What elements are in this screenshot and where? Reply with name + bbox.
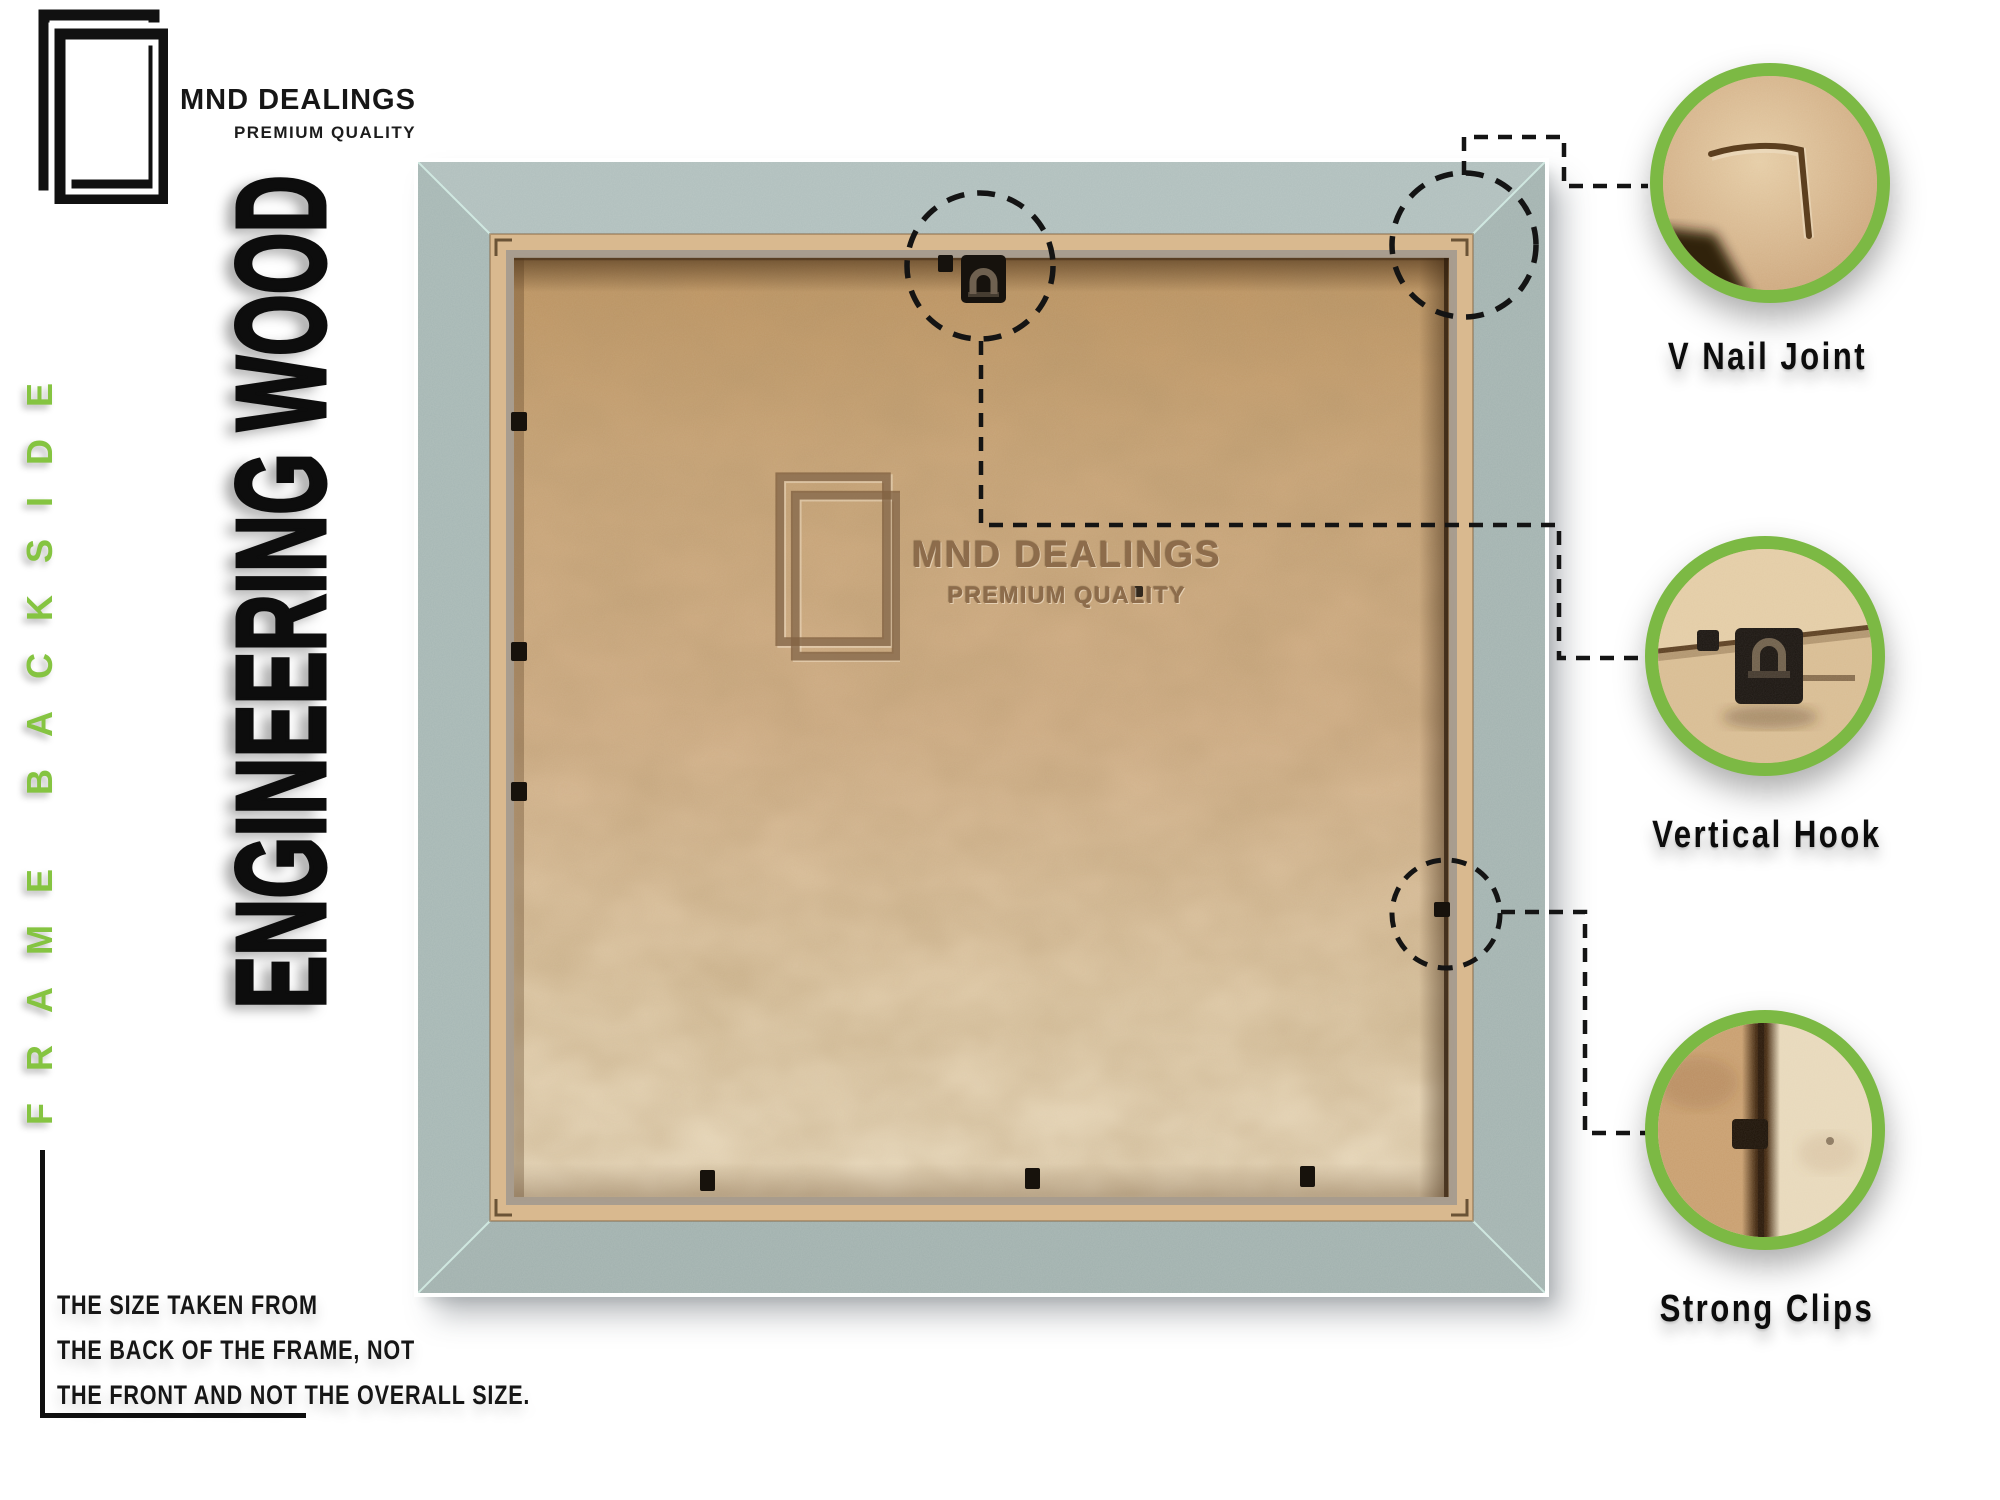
callout-label-strong-clips: Strong Clips — [1617, 1288, 1917, 1331]
brand-logo-icon — [36, 8, 168, 204]
watermark-tagline: PREMIUM QUALITY — [912, 582, 1222, 609]
size-note: THE SIZE TAKEN FROM THE BACK OF THE FRAM… — [57, 1283, 617, 1418]
side-label: FRAME BACKSIDE — [19, 351, 61, 1125]
frame-backside-photo: MND DEALINGS PREMIUM QUALITY — [418, 162, 1545, 1293]
watermark-logo-icon — [772, 468, 900, 662]
watermark-text-block: MND DEALINGS PREMIUM QUALITY — [912, 534, 1222, 609]
strong-clips-inset-photo — [1645, 1010, 1885, 1250]
size-note-line: THE BACK OF THE FRAME, NOT — [57, 1328, 617, 1373]
watermark-name: MND DEALINGS — [912, 534, 1222, 576]
size-note-line: THE FRONT AND NOT THE OVERALL SIZE. — [57, 1373, 617, 1418]
brand-name: MND DEALINGS — [180, 84, 470, 117]
note-bracket-vertical — [40, 1150, 45, 1418]
brand-text-block: MND DEALINGS PREMIUM QUALITY — [180, 84, 470, 143]
callout-label-vertical-hook: Vertical Hook — [1617, 814, 1917, 857]
v-nail-joint-inset-photo — [1650, 63, 1890, 303]
callout-label-v-nail-joint: V Nail Joint — [1617, 336, 1917, 379]
brand-tagline: PREMIUM QUALITY — [180, 123, 470, 143]
vertical-hook-inset-photo — [1645, 536, 1885, 776]
product-infographic: MND DEALINGS PREMIUM QUALITY FRAME BACKS… — [0, 0, 2000, 1500]
material-title: ENGINEERING WOOD — [209, 175, 354, 1009]
